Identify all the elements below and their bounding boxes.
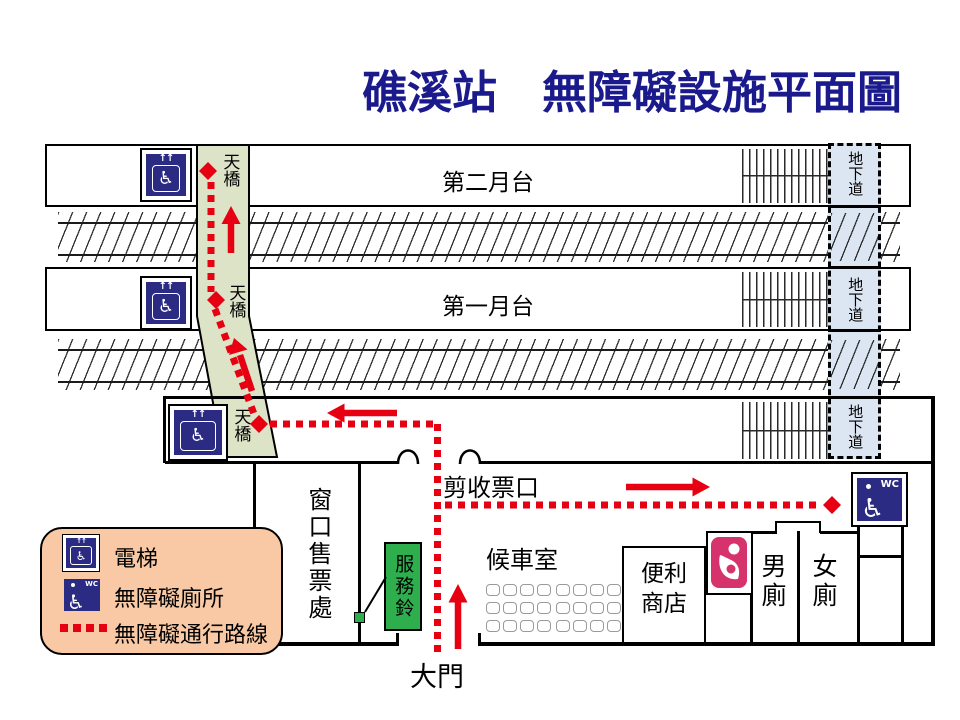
elevator-car-outline: ♿ — [152, 165, 180, 192]
wheelchair-icon: ♿ — [67, 592, 85, 612]
footbridge-label: 天橋 — [220, 153, 238, 187]
toilet-wall — [797, 531, 800, 644]
elevator-car-outline: ♿ — [152, 293, 180, 320]
toilet-top-wall — [820, 531, 858, 534]
wheelchair-icon: ♿ — [76, 550, 87, 562]
elevator-up-arrows-icon: ↑↑ — [66, 538, 96, 545]
accessible-toilet-room-line — [857, 555, 903, 558]
toilet-wall — [901, 525, 904, 644]
seat — [520, 602, 534, 614]
nursing-room-box — [706, 531, 753, 595]
elevator-car-outline: ♿ — [180, 421, 216, 451]
accessible-toilet-icon-box: WC ♿ — [851, 472, 908, 527]
mens-toilet-label: 男廁 — [759, 553, 786, 611]
waiting-seats-group — [556, 584, 621, 632]
seat — [590, 602, 604, 614]
store-label-line1: 便利 — [622, 560, 706, 590]
elevator-icon-panel: ↑↑ ♿ — [174, 410, 222, 455]
bottom-wall-right — [478, 642, 934, 646]
seat — [503, 602, 517, 614]
seat — [607, 602, 621, 614]
seat — [520, 584, 534, 596]
elevator-up-arrows-icon: ↑↑ — [174, 410, 222, 420]
footbridge-label: 天橋 — [231, 408, 249, 442]
elevator-icon-panel: ↑↑ ♿ — [146, 154, 186, 196]
waiting-seats-group — [486, 584, 551, 632]
seat — [537, 602, 551, 614]
waiting-room-label: 候車室 — [486, 540, 558, 575]
elevator-up-arrows-icon: ↑↑ — [146, 282, 186, 292]
store-label: 便利 商店 — [622, 560, 706, 620]
seat — [573, 584, 587, 596]
seat — [607, 584, 621, 596]
platform-2-label: 第二月台 — [378, 163, 598, 197]
seat — [573, 602, 587, 614]
legend-elevator-label: 電梯 — [114, 541, 158, 573]
platform-1-label: 第一月台 — [378, 287, 598, 321]
wc-text: WC — [881, 480, 899, 490]
seat — [556, 584, 570, 596]
elevator-up-arrows-icon: ↑↑ — [146, 154, 186, 164]
seat — [486, 584, 500, 596]
wc-text: WC — [85, 581, 98, 588]
seat — [573, 620, 587, 632]
store-label-line2: 商店 — [622, 590, 706, 620]
underpass-label: 地下道 — [847, 277, 863, 322]
service-bell-box: 服務鈴 — [384, 542, 422, 631]
elevator-icon: ↑↑ ♿ — [140, 148, 192, 202]
person-head-dot-icon — [71, 583, 75, 587]
underpass-label: 地下道 — [847, 151, 863, 196]
seat — [503, 584, 517, 596]
ticket-gate-label: 剪收票口 — [443, 468, 539, 503]
accessible-toilet-icon: WC ♿ — [857, 478, 902, 521]
legend-route-sample — [60, 624, 112, 632]
womens-toilet-label: 女廁 — [810, 553, 837, 611]
underpass-label: 地下道 — [847, 404, 863, 449]
toilet-wall — [857, 525, 860, 644]
seat — [520, 620, 534, 632]
nursing-room-icon — [711, 537, 747, 588]
seat — [590, 620, 604, 632]
wheelchair-icon: ♿ — [158, 298, 174, 316]
toilet-door-frame — [775, 521, 821, 523]
wheelchair-icon: ♿ — [158, 170, 174, 188]
ticket-office-label: 窗口售票處 — [304, 487, 330, 622]
seat — [556, 620, 570, 632]
seat — [486, 602, 500, 614]
legend-accessible-route-label: 無障礙通行路線 — [114, 617, 268, 649]
legend-accessible-toilet-label: 無障礙廁所 — [114, 581, 224, 613]
main-entrance-label: 大門 — [410, 655, 464, 694]
station-floorplan: 礁溪站 無障礙設施平面圖 — [0, 0, 960, 720]
entrance-tick-right — [478, 633, 481, 643]
person-head-dot-icon — [866, 484, 871, 489]
elevator-icon-panel: ↑↑ ♿ — [146, 282, 186, 324]
toilet-top-wall — [750, 531, 777, 534]
entrance-tick-left — [396, 633, 399, 643]
seat — [556, 602, 570, 614]
mother-and-baby-icon — [711, 537, 747, 588]
elevator-icon: ↑↑ ♿ — [140, 276, 192, 330]
legend-accessible-toilet-icon: WC ♿ — [64, 579, 100, 611]
seat — [537, 584, 551, 596]
wheelchair-icon: ♿ — [190, 427, 206, 445]
footbridge-label: 天橋 — [226, 284, 244, 318]
seat — [503, 620, 517, 632]
wheelchair-icon: ♿ — [861, 496, 884, 522]
service-bell-marker — [354, 612, 365, 623]
seat — [607, 620, 621, 632]
elevator-icon: ↑↑ ♿ — [168, 404, 228, 461]
seat — [486, 620, 500, 632]
elevator-car-outline: ♿ — [70, 546, 92, 565]
legend-elevator-icon: ↑↑ ♿ — [62, 534, 100, 572]
seat — [590, 584, 604, 596]
seat — [537, 620, 551, 632]
service-bell-label: 服務鈴 — [393, 554, 414, 620]
elevator-icon-panel: ↑↑ ♿ — [66, 538, 96, 568]
